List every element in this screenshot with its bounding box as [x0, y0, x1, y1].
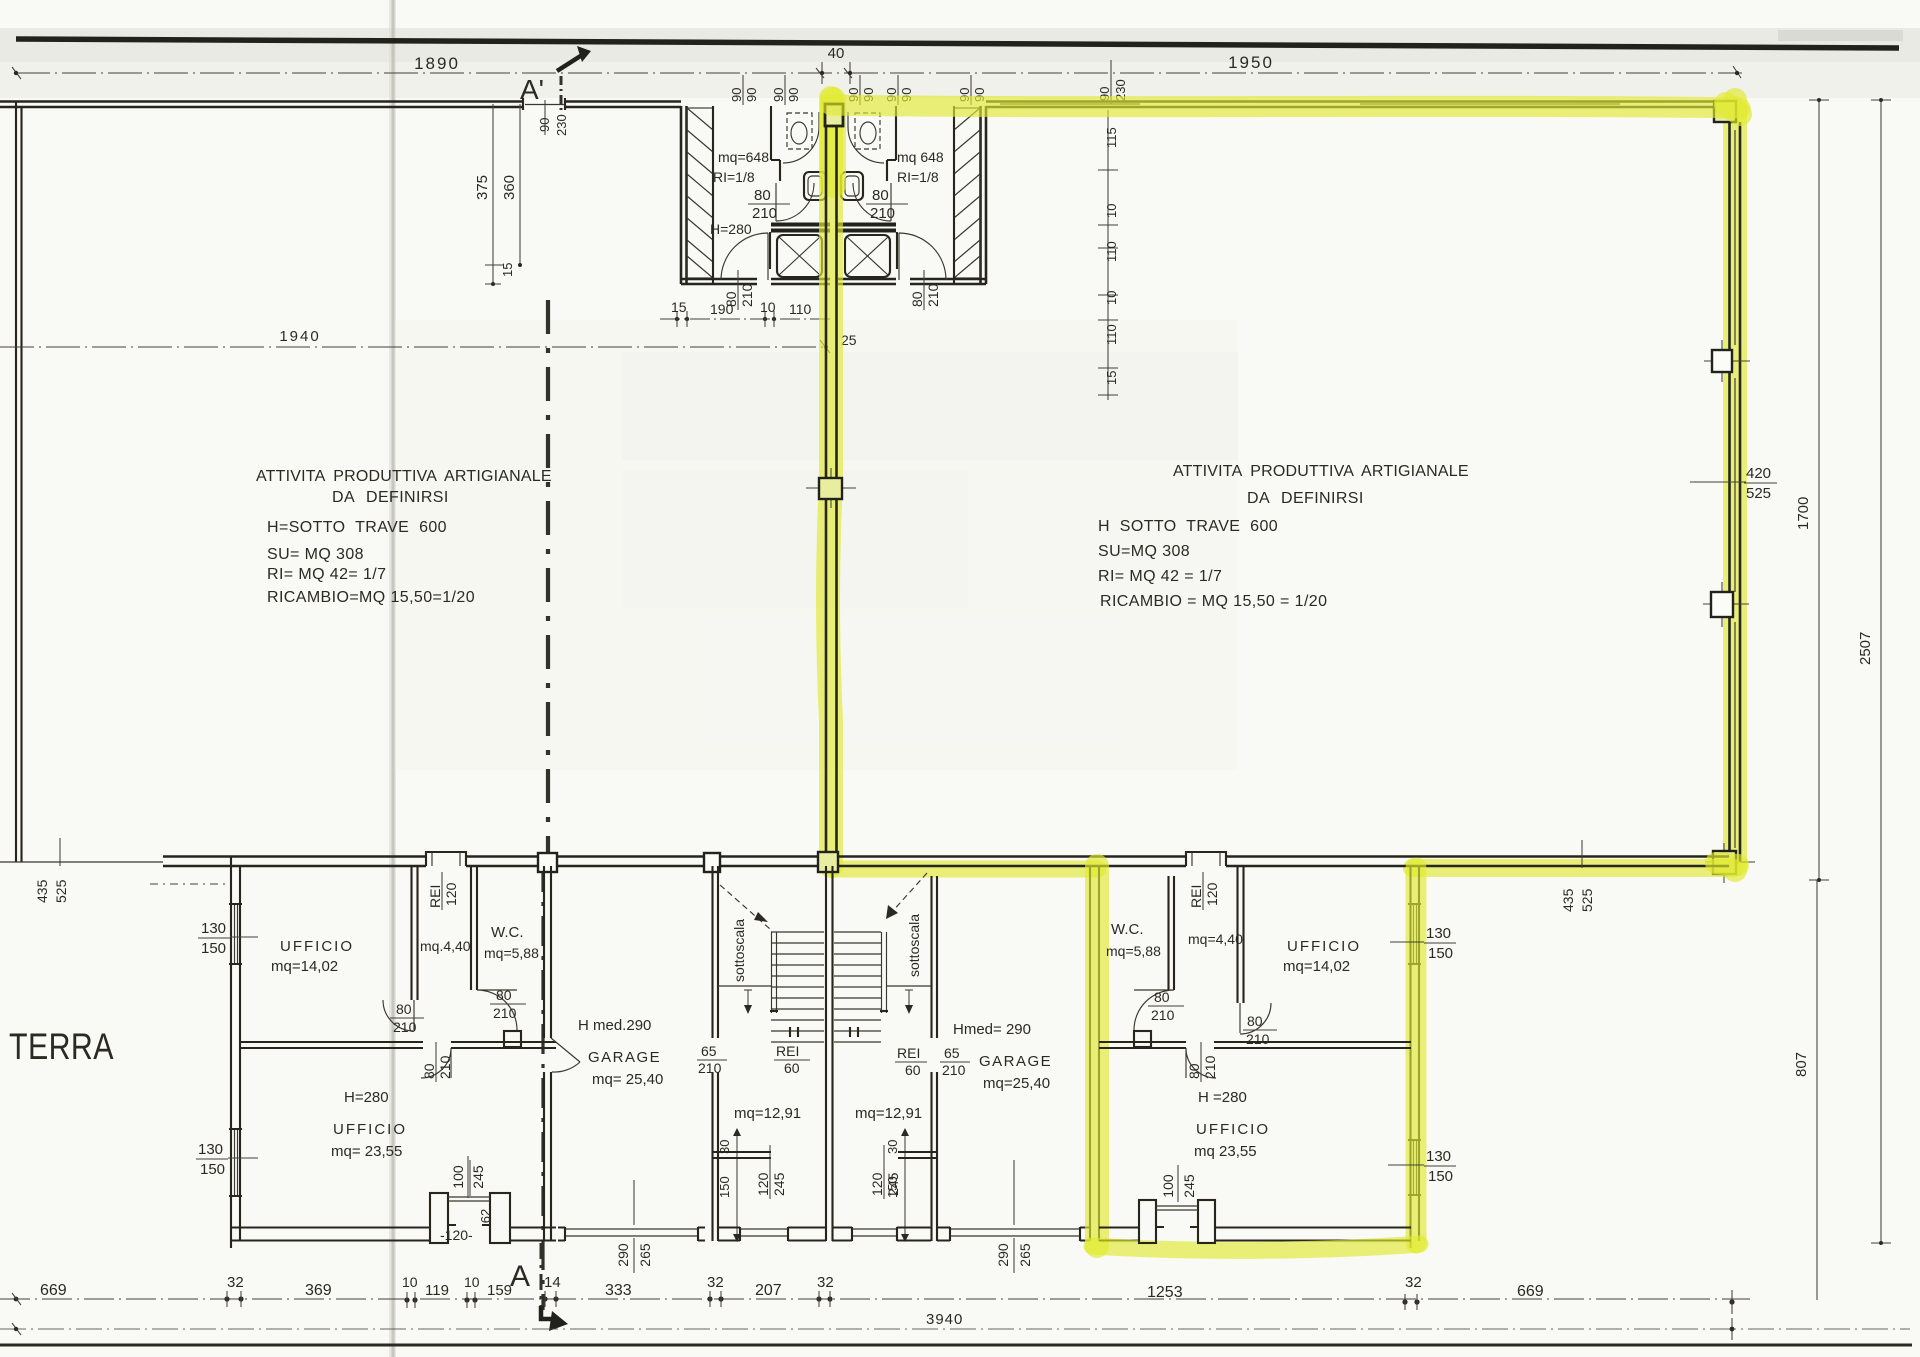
svg-text:90: 90: [786, 88, 801, 102]
svg-text:UFFICIO: UFFICIO: [1287, 938, 1361, 955]
svg-text:80: 80: [396, 1001, 412, 1017]
svg-text:420: 420: [1746, 465, 1771, 482]
svg-text:65: 65: [944, 1045, 960, 1061]
svg-text:265: 265: [1017, 1243, 1033, 1267]
svg-text:65: 65: [701, 1043, 717, 1059]
svg-text:80: 80: [1154, 989, 1170, 1005]
svg-text:mq=4,40: mq=4,40: [1188, 931, 1243, 947]
svg-text:669: 669: [40, 1282, 67, 1299]
svg-text:1700: 1700: [1795, 497, 1812, 530]
svg-text:130: 130: [1426, 925, 1451, 942]
svg-text:REI: REI: [897, 1045, 920, 1061]
svg-text:H SOTTO TRAVE 600: H SOTTO TRAVE 600: [1098, 518, 1278, 535]
svg-text:130: 130: [201, 920, 226, 937]
svg-text:210: 210: [870, 205, 895, 222]
svg-text:RI= MQ 42= 1/7: RI= MQ 42= 1/7: [267, 566, 386, 583]
svg-text:10: 10: [1104, 291, 1119, 305]
svg-text:mq.4,40: mq.4,40: [420, 938, 471, 954]
svg-text:210: 210: [393, 1019, 417, 1035]
svg-text:GARAGE: GARAGE: [588, 1049, 661, 1066]
svg-text:DA DEFINIRSI: DA DEFINIRSI: [332, 489, 449, 506]
svg-text:-120-: -120-: [440, 1227, 473, 1243]
svg-text:mq= 23,55: mq= 23,55: [331, 1143, 402, 1160]
svg-text:UFFICIO: UFFICIO: [1196, 1121, 1270, 1138]
svg-text:159: 159: [487, 1282, 512, 1299]
svg-text:150: 150: [200, 1161, 225, 1178]
svg-text:210: 210: [942, 1062, 966, 1078]
svg-text:80: 80: [421, 1063, 437, 1079]
svg-text:Hmed= 290: Hmed= 290: [953, 1021, 1031, 1038]
svg-text:1950: 1950: [1228, 53, 1274, 72]
svg-text:TERRA: TERRA: [9, 1026, 114, 1068]
svg-text:H=280: H=280: [344, 1089, 389, 1106]
svg-text:mq=14,02: mq=14,02: [1283, 958, 1350, 975]
svg-text:1253: 1253: [1147, 1284, 1183, 1301]
svg-text:80: 80: [872, 187, 889, 204]
svg-text:10: 10: [1104, 204, 1119, 218]
svg-text:REI: REI: [427, 885, 443, 908]
svg-text:210: 210: [925, 283, 941, 307]
svg-text:H =280: H =280: [1198, 1089, 1247, 1106]
svg-text:110: 110: [1104, 241, 1119, 262]
svg-text:RI=1/8: RI=1/8: [713, 169, 755, 185]
svg-text:mq=25,40: mq=25,40: [983, 1075, 1050, 1092]
svg-text:807: 807: [1793, 1052, 1810, 1077]
svg-text:mq=12,91: mq=12,91: [734, 1105, 801, 1122]
svg-text:207: 207: [755, 1282, 782, 1299]
svg-text:90: 90: [771, 88, 786, 102]
svg-text:100: 100: [450, 1165, 466, 1189]
svg-text:150: 150: [1428, 945, 1453, 962]
svg-text:210: 210: [493, 1005, 517, 1021]
svg-text:120: 120: [869, 1172, 885, 1196]
svg-text:100: 100: [1160, 1174, 1176, 1198]
svg-text:40: 40: [828, 45, 845, 62]
svg-text:mq= 25,40: mq= 25,40: [592, 1071, 663, 1088]
svg-text:360: 360: [501, 175, 518, 200]
svg-text:290: 290: [615, 1243, 631, 1267]
svg-text:mq 23,55: mq 23,55: [1194, 1143, 1257, 1160]
svg-text:150: 150: [201, 940, 226, 957]
svg-text:GARAGE: GARAGE: [979, 1053, 1052, 1070]
svg-text:30: 30: [885, 1140, 900, 1154]
svg-text:A: A: [510, 1260, 530, 1293]
svg-text:245: 245: [470, 1165, 486, 1189]
svg-text:62: 62: [478, 1209, 493, 1223]
svg-text:10: 10: [760, 299, 776, 315]
svg-text:80: 80: [909, 291, 925, 307]
svg-text:210: 210: [1151, 1007, 1175, 1023]
svg-text:119: 119: [425, 1282, 449, 1299]
svg-text:110: 110: [789, 301, 812, 317]
svg-text:W.C.: W.C.: [1111, 921, 1144, 938]
svg-text:120: 120: [1204, 882, 1220, 906]
svg-text:210: 210: [752, 205, 777, 222]
svg-text:525: 525: [1579, 888, 1595, 912]
svg-text:80: 80: [1247, 1013, 1263, 1029]
svg-text:60: 60: [784, 1060, 800, 1076]
svg-text:80: 80: [496, 987, 512, 1003]
svg-text:130: 130: [198, 1141, 223, 1158]
svg-text:RI= MQ 42 = 1/7: RI= MQ 42 = 1/7: [1098, 568, 1222, 585]
svg-text:120: 120: [443, 882, 459, 906]
svg-text:RICAMBIO=MQ 15,50=1/20: RICAMBIO=MQ 15,50=1/20: [267, 589, 475, 606]
svg-text:REI: REI: [776, 1043, 799, 1059]
svg-text:130: 130: [1426, 1148, 1451, 1165]
svg-text:32: 32: [817, 1274, 834, 1291]
svg-text:120: 120: [755, 1172, 771, 1196]
svg-text:290: 290: [995, 1243, 1011, 1267]
svg-text:110: 110: [1104, 324, 1119, 345]
svg-text:SU=MQ 308: SU=MQ 308: [1098, 543, 1190, 560]
svg-text:ATTIVITA PRODUTTIVA ARTIGIANAL: ATTIVITA PRODUTTIVA ARTIGIANALE: [1173, 463, 1469, 480]
svg-text:150: 150: [717, 1176, 732, 1198]
svg-text:115: 115: [1104, 127, 1119, 148]
svg-text:525: 525: [53, 879, 69, 903]
svg-text:265: 265: [637, 1243, 653, 1267]
svg-text:DA DEFINIRSI: DA DEFINIRSI: [1247, 490, 1364, 507]
svg-text:REI: REI: [1188, 885, 1204, 908]
svg-text:1890: 1890: [414, 54, 460, 73]
svg-text:15: 15: [671, 299, 687, 315]
svg-text:90: 90: [729, 88, 744, 102]
svg-text:210: 210: [1202, 1055, 1218, 1079]
svg-text:3940: 3940: [926, 1311, 963, 1328]
svg-text:435: 435: [1560, 888, 1576, 912]
svg-text:60: 60: [905, 1062, 921, 1078]
svg-text:sottoscala: sottoscala: [906, 914, 922, 977]
svg-text:SU= MQ 308: SU= MQ 308: [267, 546, 364, 563]
svg-text:mq=648: mq=648: [718, 149, 769, 165]
svg-text:245: 245: [771, 1172, 787, 1196]
svg-text:190: 190: [710, 301, 734, 317]
svg-text:32: 32: [707, 1274, 724, 1291]
svg-text:375: 375: [474, 175, 491, 200]
svg-text:210: 210: [698, 1060, 722, 1076]
svg-text:333: 333: [605, 1282, 632, 1299]
svg-text:sottoscala: sottoscala: [731, 919, 747, 982]
svg-text:2507: 2507: [1857, 632, 1874, 665]
svg-text:H med.290: H med.290: [578, 1017, 651, 1034]
svg-text:25: 25: [841, 332, 857, 348]
svg-text:32: 32: [227, 1274, 244, 1291]
svg-text:80: 80: [754, 187, 771, 204]
svg-text:150: 150: [1428, 1168, 1453, 1185]
svg-text:UFFICIO: UFFICIO: [333, 1121, 407, 1138]
svg-text:10: 10: [464, 1274, 480, 1290]
svg-text:90: 90: [744, 88, 759, 102]
svg-text:RICAMBIO = MQ 15,50 = 1/20: RICAMBIO = MQ 15,50 = 1/20: [1100, 593, 1327, 610]
svg-text:10: 10: [402, 1274, 418, 1290]
svg-text:RI=1/8: RI=1/8: [897, 169, 939, 185]
svg-text:245: 245: [1181, 1174, 1197, 1198]
svg-text:210: 210: [1246, 1031, 1270, 1047]
svg-text:mq=5,88: mq=5,88: [1106, 943, 1161, 959]
svg-text:H=SOTTO TRAVE 600: H=SOTTO TRAVE 600: [267, 519, 447, 536]
svg-text:230: 230: [554, 114, 569, 136]
svg-text:W.C.: W.C.: [491, 924, 524, 941]
svg-text:32: 32: [1405, 1274, 1422, 1291]
svg-text:245: 245: [885, 1172, 901, 1196]
svg-text:80: 80: [1186, 1063, 1202, 1079]
svg-text:H=280: H=280: [710, 221, 752, 237]
svg-text:525: 525: [1746, 485, 1771, 502]
svg-text:mq 648: mq 648: [897, 149, 944, 165]
svg-text:ATTIVITA PRODUTTIVA ARTIGIANAL: ATTIVITA PRODUTTIVA ARTIGIANALE: [256, 468, 552, 485]
svg-text:435: 435: [34, 879, 50, 903]
svg-text:15: 15: [1104, 371, 1119, 385]
svg-text:mq=5,88: mq=5,88: [484, 945, 539, 961]
svg-text:1940: 1940: [279, 328, 320, 345]
svg-text:UFFICIO: UFFICIO: [280, 938, 354, 955]
svg-text:mq=14,02: mq=14,02: [271, 958, 338, 975]
svg-text:210: 210: [437, 1055, 453, 1079]
svg-text:210: 210: [739, 283, 755, 307]
svg-text:369: 369: [305, 1282, 332, 1299]
svg-text:14: 14: [544, 1274, 561, 1291]
svg-text:669: 669: [1517, 1283, 1544, 1300]
svg-text:mq=12,91: mq=12,91: [855, 1105, 922, 1122]
